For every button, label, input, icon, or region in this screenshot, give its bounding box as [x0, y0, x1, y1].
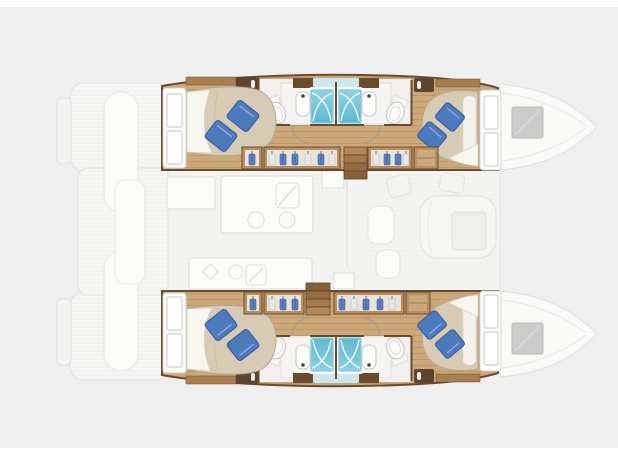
galley-sink [279, 212, 295, 228]
transom-steps-port [57, 98, 71, 164]
appliance-near-stairs-starboard [334, 273, 354, 289]
companionway-stairs-port [344, 147, 367, 179]
saloon-ghost [167, 171, 500, 291]
wardrobe-unit [264, 292, 304, 314]
wardrobe-unit [334, 292, 404, 314]
wardrobe-unit [368, 147, 412, 169]
appliance-near-stairs-port [322, 171, 344, 188]
wardrobe-unit [244, 292, 262, 314]
loose-cushion [439, 172, 465, 193]
galley-sink-2 [229, 265, 243, 279]
cabinet-unit [406, 292, 430, 314]
saloon-table [452, 212, 486, 250]
cockpit-table [115, 180, 145, 284]
chaise-seat [376, 250, 400, 278]
starboard-hull [162, 291, 501, 386]
floorplan-canvas [0, 0, 618, 463]
transom-steps-starboard [57, 299, 71, 365]
catamaran-floorplan [0, 0, 618, 463]
galley-counter-aft [167, 177, 215, 209]
cabinet-unit [414, 147, 438, 169]
wardrobe-unit [242, 147, 262, 169]
wardrobe-unit [264, 147, 340, 169]
companionway-stairs-starboard [306, 283, 330, 315]
galley-sink [248, 212, 264, 228]
chaise-seat [368, 206, 394, 244]
